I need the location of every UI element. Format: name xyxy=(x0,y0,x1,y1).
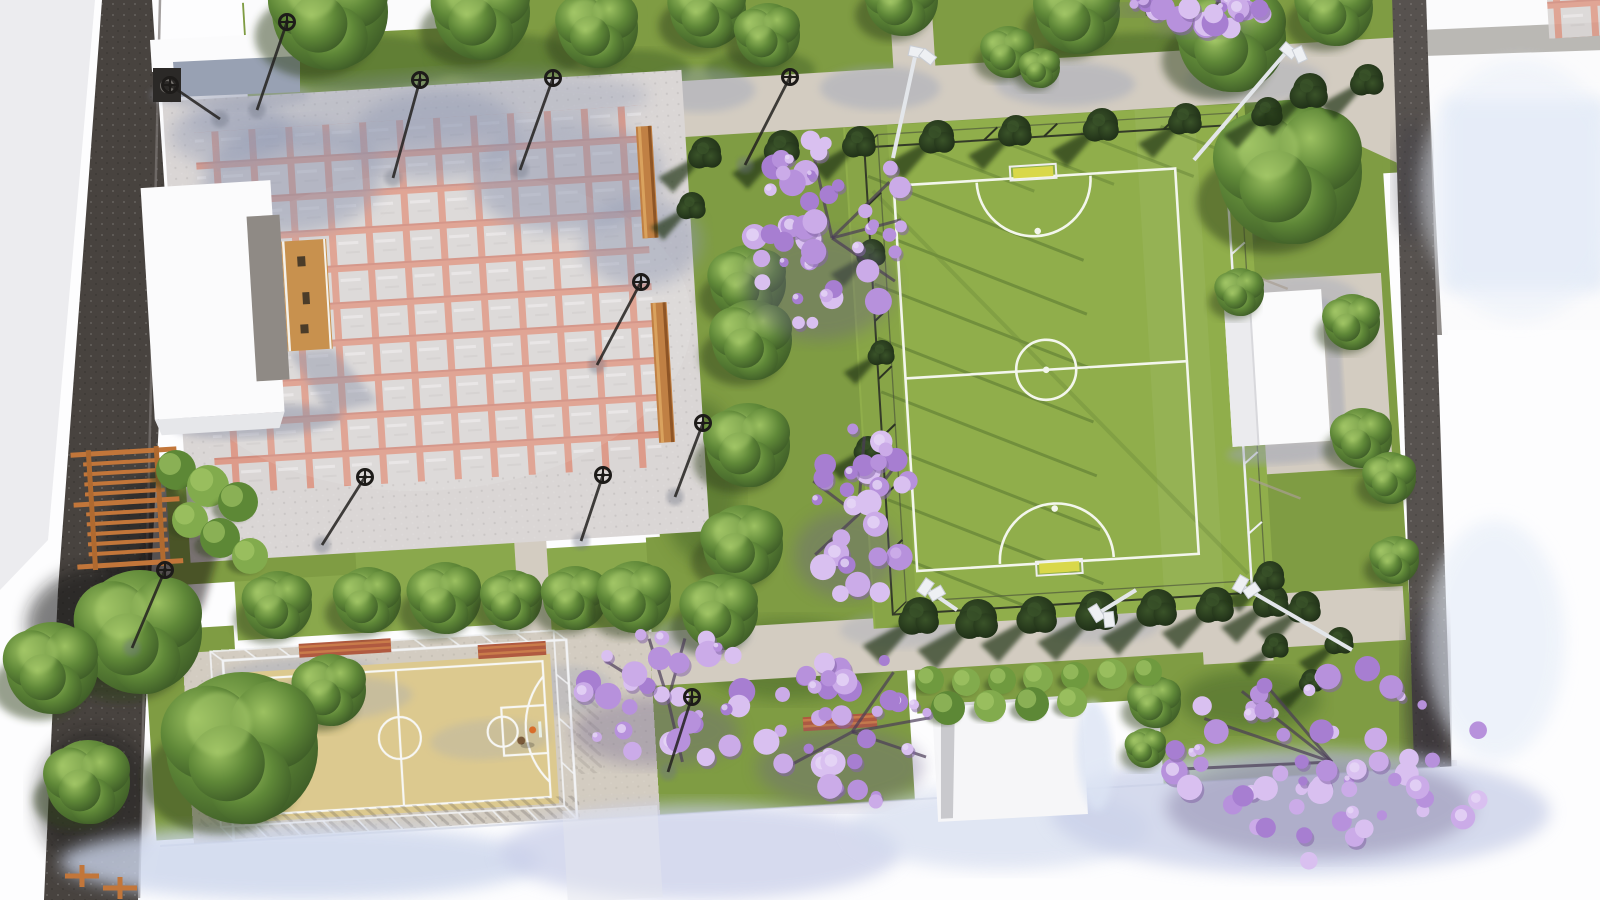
park-aerial-render xyxy=(0,0,1600,900)
scene-canvas xyxy=(0,0,1600,900)
